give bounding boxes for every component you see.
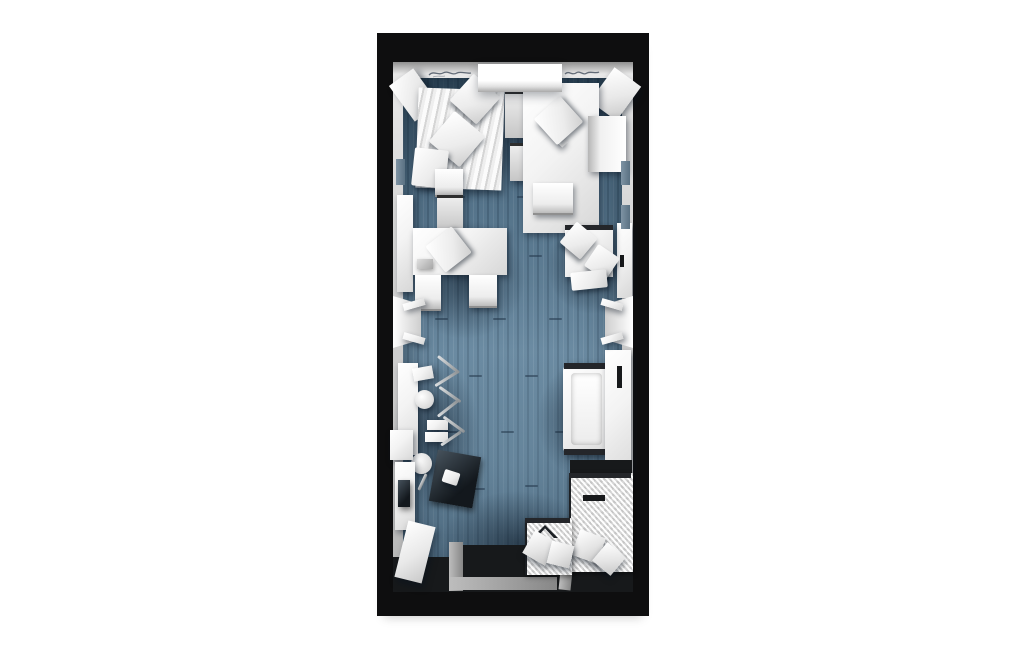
furniture-layer [377, 33, 649, 616]
chair-desk-north [435, 169, 463, 197]
floor-seam [549, 318, 562, 320]
desk-tray [417, 259, 433, 269]
desk-stool [533, 183, 573, 215]
daybed-mattress [571, 373, 602, 445]
cabinet-left [397, 195, 413, 292]
stool-seat-2 [415, 390, 434, 409]
wall-vent-left [396, 159, 405, 185]
vanity-top [390, 430, 413, 460]
drawer-unit [437, 195, 463, 230]
cabinet-right-handle [620, 255, 624, 267]
chair-desk-south-2 [469, 275, 497, 308]
entry-ramp-bottom [449, 577, 557, 590]
bath-mat-right-trim [569, 473, 631, 478]
bath-slot [583, 495, 605, 501]
wall-inscription-left [427, 67, 473, 79]
wall-inscription-right [563, 67, 601, 79]
vanity-slot [398, 480, 410, 507]
armchair-throw [570, 269, 608, 291]
floor-plan [377, 33, 649, 616]
daybed-trim-top [564, 363, 609, 369]
floor-seam [525, 485, 538, 487]
ceiling-beam [478, 64, 562, 92]
floor-seam [529, 255, 542, 257]
wall-vent-right-2 [621, 205, 630, 229]
stool-seat-3 [427, 420, 448, 430]
wall-vent-right-1 [621, 161, 630, 185]
daybed-trim-bottom [564, 449, 609, 455]
floor-seam [501, 431, 514, 433]
wardrobe-handle [617, 366, 622, 388]
bath-mat-left-trim [525, 518, 570, 523]
page-background [0, 0, 1024, 655]
bath-dark-recess [570, 460, 632, 474]
